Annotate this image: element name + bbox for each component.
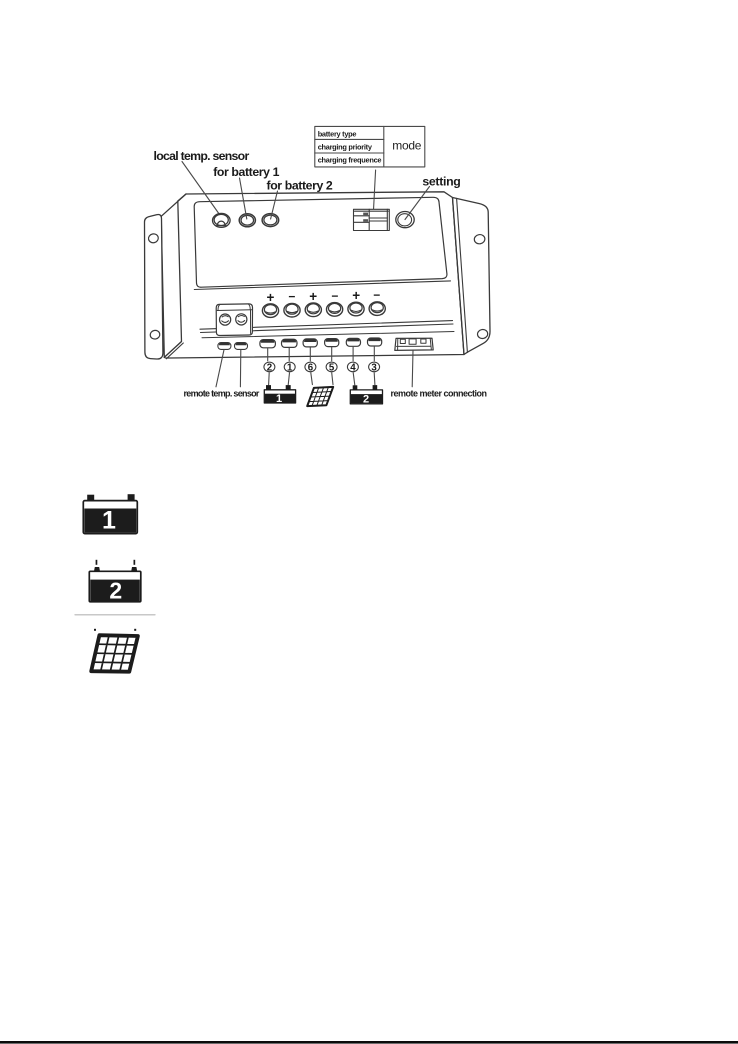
svg-text:2: 2 (363, 394, 369, 406)
svg-text:setting: setting (422, 174, 460, 188)
svg-text:remote meter connection: remote meter connection (391, 388, 487, 398)
svg-text:4: 4 (350, 362, 356, 373)
svg-text:1: 1 (276, 393, 282, 405)
svg-text:2: 2 (267, 362, 272, 373)
svg-text:−: − (373, 288, 380, 302)
svg-text:+: + (309, 289, 317, 304)
svg-text:3: 3 (371, 362, 377, 373)
svg-text:mode: mode (392, 138, 421, 152)
svg-text:5: 5 (329, 362, 335, 373)
svg-text:charging priority: charging priority (318, 143, 373, 152)
svg-text:−: − (331, 289, 338, 303)
svg-text:+: + (352, 288, 360, 303)
svg-text:+: + (266, 290, 274, 305)
svg-text:remote temp. sensor: remote temp. sensor (184, 388, 260, 398)
svg-text:1: 1 (102, 506, 116, 534)
svg-text:−: − (288, 290, 295, 304)
svg-text:1: 1 (287, 362, 293, 373)
svg-text:charging frequence: charging frequence (318, 155, 382, 164)
svg-text:6: 6 (308, 362, 314, 373)
svg-text:for battery 2: for battery 2 (267, 179, 333, 193)
svg-text:battery type: battery type (318, 130, 357, 139)
svg-text:for battery 1: for battery 1 (213, 165, 279, 179)
svg-text:2: 2 (109, 578, 122, 604)
svg-text:local temp. sensor: local temp. sensor (154, 149, 250, 163)
